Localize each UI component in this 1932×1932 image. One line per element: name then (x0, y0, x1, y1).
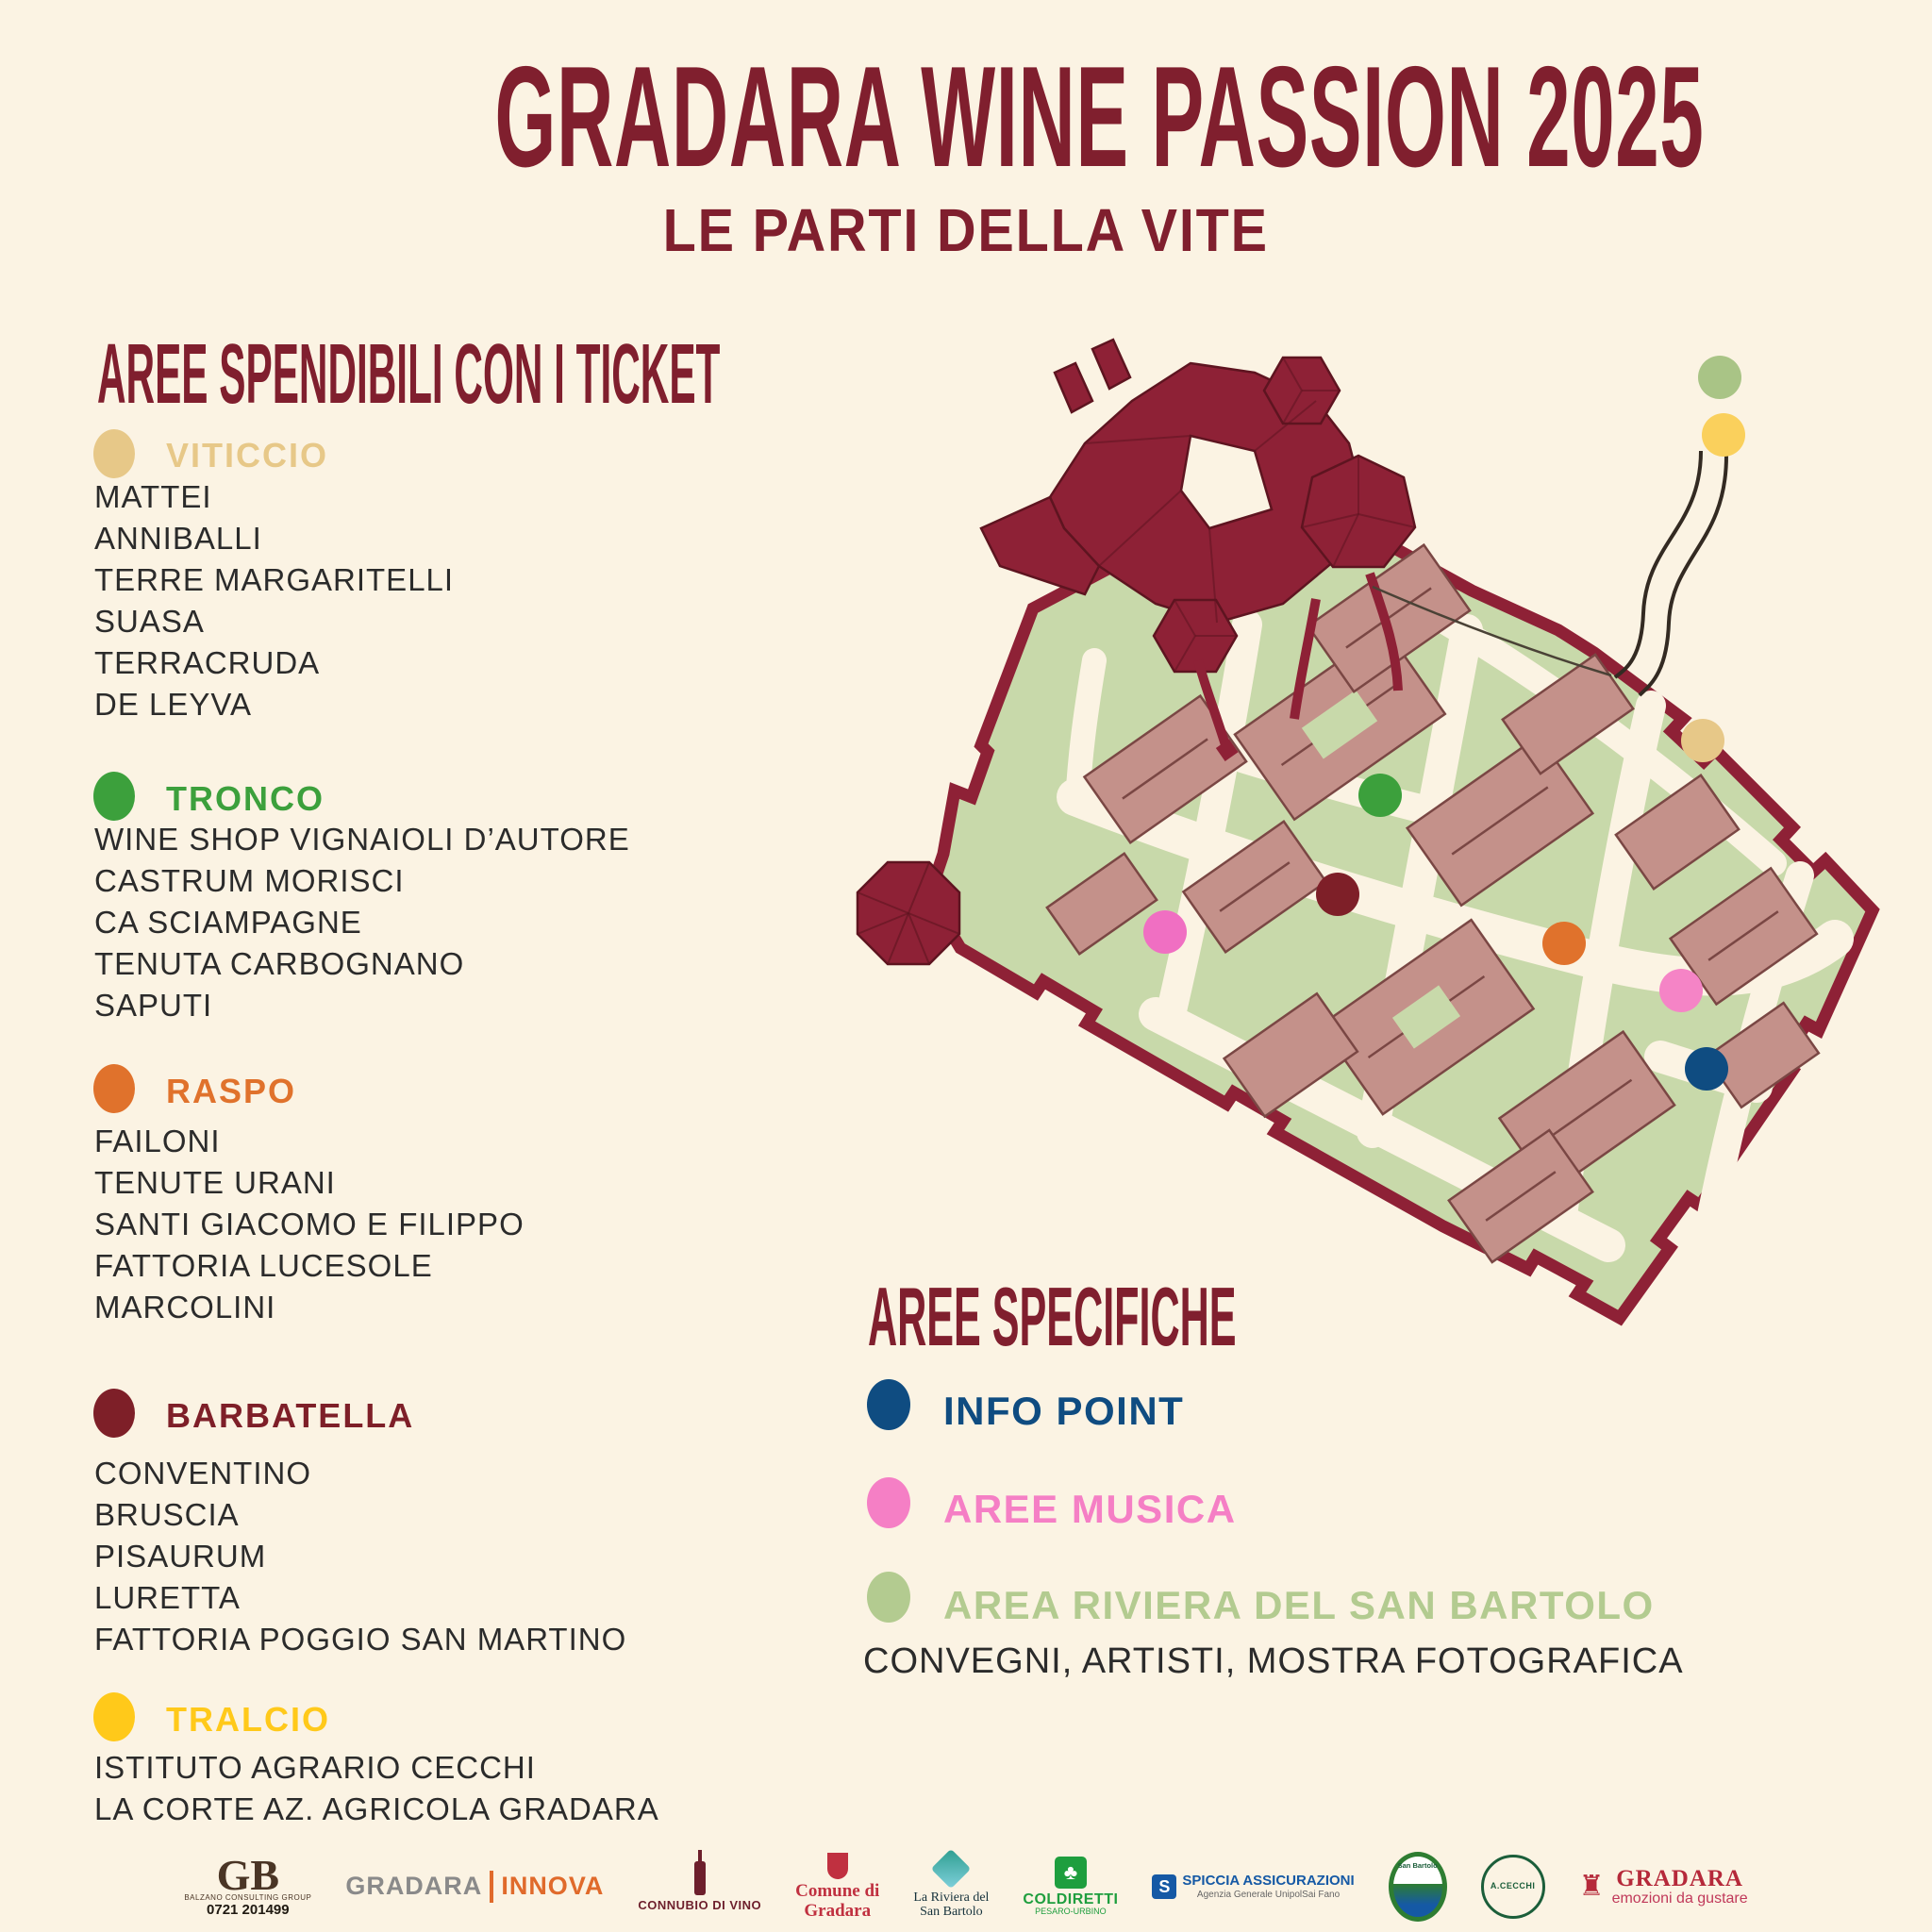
emozioni-text: GRADARA (1612, 1867, 1748, 1890)
spiccia-s-icon: S (1152, 1874, 1176, 1899)
park-oval-icon: San Bartolo (1389, 1852, 1447, 1922)
ticket-areas-heading-text: AREE SPENDIBILI CON I TICKET (97, 332, 720, 417)
page-title: GRADARA WINE PASSION 2025 (0, 45, 1932, 189)
list-item: SANTI GIACOMO E FILIPPO (94, 1204, 525, 1245)
riviera-san-bartolo-logo: La Riviera del San Bartolo (913, 1855, 989, 1920)
connubio-di-vino-logo: CONNUBIO DI VINO (638, 1861, 761, 1912)
riviera-text2: San Bartolo (920, 1905, 983, 1919)
page-title-text: GRADARA WINE PASSION 2025 (494, 45, 1704, 189)
list-item: BRUSCIA (94, 1494, 626, 1536)
area-riviera-label: AREA RIVIERA DEL SAN BARTOLO (943, 1583, 1655, 1628)
map-marker-raspo (1542, 922, 1586, 965)
specific-areas-note: CONVEGNI, ARTISTI, MOSTRA FOTOGRAFICA (863, 1641, 1684, 1682)
list-item: FATTORIA POGGIO SAN MARTINO (94, 1619, 626, 1660)
gradara-innova-logo: GRADARA INNOVA (345, 1871, 604, 1903)
tralcio-list: ISTITUTO AGRARIO CECCHI LA CORTE AZ. AGR… (94, 1747, 659, 1830)
tronco-label: TRONCO (166, 779, 325, 819)
crest-icon (827, 1853, 848, 1879)
connubio-text: CONNUBIO DI VINO (638, 1899, 761, 1912)
spiccia-text: SPICCIA ASSICURAZIONI (1182, 1874, 1354, 1890)
tree-icon: ♣ (1055, 1857, 1087, 1889)
list-item: CONVENTINO (94, 1453, 626, 1494)
list-item: MATTEI (94, 476, 454, 518)
list-item: LURETTA (94, 1577, 626, 1619)
spiccia-assicurazioni-logo: S SPICCIA ASSICURAZIONI Agenzia Generale… (1152, 1874, 1354, 1900)
barbatella-label: BARBATELLA (166, 1396, 414, 1436)
map-marker-aree-musica-2 (1659, 969, 1703, 1012)
list-item: TERRACRUDA (94, 642, 454, 684)
map-marker-aree-musica-1 (1143, 910, 1187, 954)
emozioni-subtext: emozioni da gustare (1612, 1890, 1748, 1907)
castle-prong (1055, 363, 1092, 412)
poster-page: GRADARA WINE PASSION 2025 LE PARTI DELLA… (0, 0, 1932, 1932)
specific-areas-heading: AREE SPECIFICHE (868, 1275, 1620, 1358)
riviera-text1: La Riviera del (913, 1890, 989, 1905)
map-marker-info-point (1685, 1047, 1728, 1091)
list-item: WINE SHOP VIGNAIOLI D’AUTORE (94, 819, 630, 860)
list-item: ISTITUTO AGRARIO CECCHI (94, 1747, 659, 1789)
map-marker-tronco (1358, 774, 1402, 817)
gradara-innova-text1: GRADARA (345, 1873, 482, 1901)
page-subtitle-text: LE PARTI DELLA VITE (663, 200, 1269, 260)
list-item: SAPUTI (94, 985, 630, 1026)
cecchi-text: A.CECCHI (1491, 1882, 1536, 1891)
map-marker-viticcio (1681, 719, 1724, 762)
viticcio-list: MATTEI ANNIBALLI TERRE MARGARITELLI SUAS… (94, 476, 454, 725)
viticcio-label: VITICCIO (166, 436, 328, 475)
parco-text: San Bartolo (1398, 1862, 1438, 1870)
info-point-label: INFO POINT (943, 1389, 1184, 1434)
balzano-consulting-logo: GB BALZANO CONSULTING GROUP 0721 201499 (184, 1856, 311, 1919)
list-item: FAILONI (94, 1121, 525, 1162)
gradara-town-map (840, 255, 1932, 1377)
sponsor-logos-bar: GB BALZANO CONSULTING GROUP 0721 201499 … (57, 1840, 1875, 1932)
aree-musica-dot (867, 1477, 910, 1528)
castle-icon: ♜ (1579, 1873, 1605, 1901)
list-item: CA SCIAMPAGNE (94, 902, 630, 943)
tronco-list: WINE SHOP VIGNAIOLI D’AUTORE CASTRUM MOR… (94, 819, 630, 1026)
wine-bottle-icon (694, 1861, 706, 1895)
list-item: TENUTA CARBOGNANO (94, 943, 630, 985)
raspo-list: FAILONI TENUTE URANI SANTI GIACOMO E FIL… (94, 1121, 525, 1328)
map-marker-tralcio (1702, 413, 1745, 457)
access-road (1615, 451, 1726, 695)
aree-musica-label: AREE MUSICA (943, 1487, 1237, 1532)
tronco-dot (93, 772, 135, 821)
map-marker-barbatella (1316, 873, 1359, 916)
map-marker-area-riviera (1698, 356, 1741, 399)
coldiretti-logo: ♣ COLDIRETTI PESARO-URBINO (1023, 1857, 1118, 1917)
seal-icon: A.CECCHI (1481, 1855, 1545, 1919)
area-riviera-dot (867, 1572, 910, 1623)
tralcio-dot (93, 1692, 135, 1741)
divider-bar-icon (490, 1871, 493, 1903)
list-item: LA CORTE AZ. AGRICOLA GRADARA (94, 1789, 659, 1830)
tralcio-label: TRALCIO (166, 1700, 330, 1740)
barbatella-list: CONVENTINO BRUSCIA PISAURUM LURETTA FATT… (94, 1453, 626, 1660)
list-item: CASTRUM MORISCI (94, 860, 630, 902)
heart-diamond-icon (931, 1848, 971, 1888)
list-item: FATTORIA LUCESOLE (94, 1245, 525, 1287)
specific-areas-heading-text: AREE SPECIFICHE (868, 1275, 1237, 1358)
gb-phone: 0721 201499 (207, 1903, 290, 1919)
gradara-emozioni-logo: ♜ GRADARA emozioni da gustare (1579, 1867, 1748, 1907)
list-item: SUASA (94, 601, 454, 642)
comune-text1: Comune di (795, 1882, 879, 1902)
raspo-dot (93, 1064, 135, 1113)
barbatella-dot (93, 1389, 135, 1438)
octagon-tower (858, 862, 959, 964)
list-item: ANNIBALLI (94, 518, 454, 559)
info-point-dot (867, 1379, 910, 1430)
parco-san-bartolo-logo: San Bartolo (1389, 1852, 1447, 1922)
castle-prong (1092, 340, 1130, 389)
istituto-cecchi-logo: A.CECCHI (1481, 1855, 1545, 1919)
gb-monogram-icon: GB (217, 1856, 279, 1894)
coldiretti-text: COLDIRETTI (1023, 1891, 1118, 1908)
comune-text2: Gradara (804, 1902, 871, 1922)
list-item: PISAURUM (94, 1536, 626, 1577)
list-item: TERRE MARGARITELLI (94, 559, 454, 601)
spiccia-subtext: Agenzia Generale UnipolSai Fano (1182, 1890, 1354, 1900)
page-subtitle: LE PARTI DELLA VITE (0, 200, 1932, 260)
coldiretti-subtext: PESARO-URBINO (1035, 1907, 1107, 1917)
viticcio-dot (93, 429, 135, 478)
gradara-innova-text2: INNOVA (501, 1873, 604, 1901)
list-item: MARCOLINI (94, 1287, 525, 1328)
comune-di-gradara-logo: Comune di Gradara (795, 1853, 879, 1922)
list-item: TENUTE URANI (94, 1162, 525, 1204)
raspo-label: RASPO (166, 1072, 296, 1111)
list-item: DE LEYVA (94, 684, 454, 725)
